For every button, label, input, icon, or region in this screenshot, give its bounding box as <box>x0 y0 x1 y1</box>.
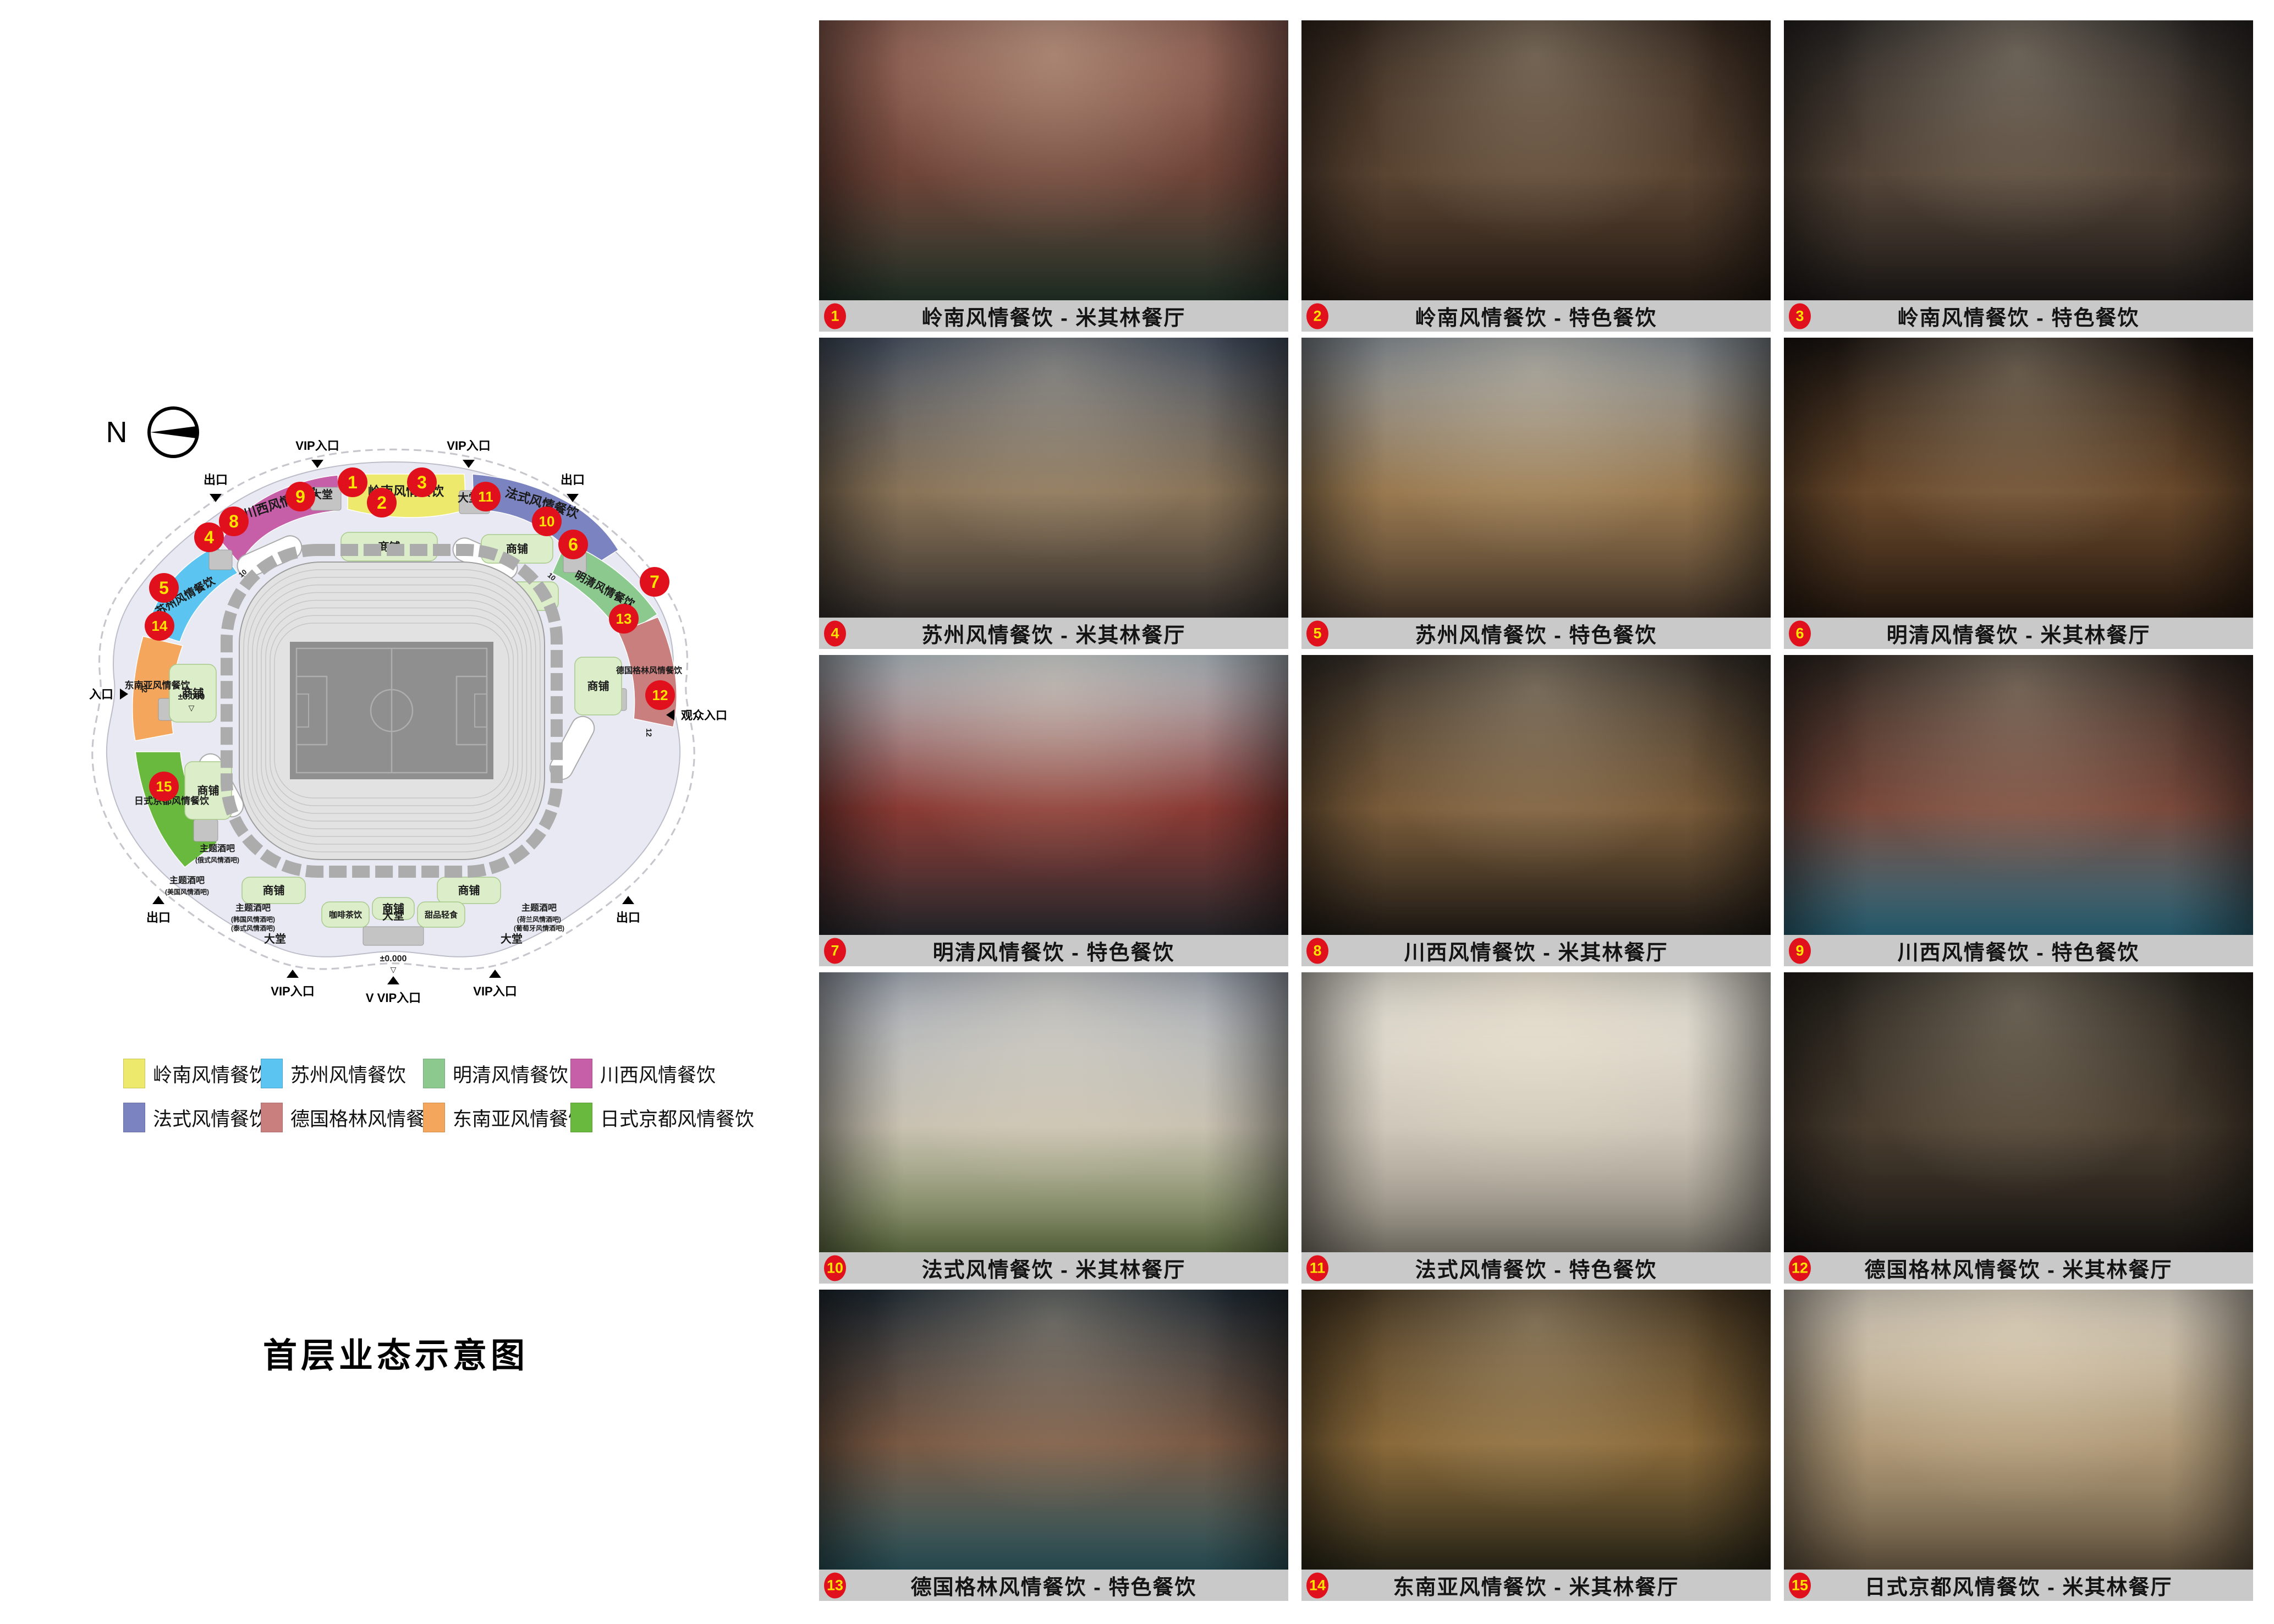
entrance-label: 出口 <box>561 473 585 487</box>
photo-card: 8川西风情餐饮 - 米其林餐厅 <box>1301 655 1771 966</box>
entrance-label: VIP入口 <box>271 984 314 998</box>
plan-marker-number: 9 <box>295 487 305 507</box>
photo-card: 13德国格林风情餐饮 - 特色餐饮 <box>819 1290 1288 1601</box>
caption-number-badge: 13 <box>824 1572 846 1598</box>
photo-caption-bar: 6明清风情餐饮 - 米其林餐厅 <box>1784 618 2253 649</box>
plan-label: ▽ <box>189 703 195 712</box>
compass-needle-icon <box>150 426 196 438</box>
caption-text: 明清风情餐饮 - 米其林餐厅 <box>1887 618 2151 648</box>
plan-marker-number: 13 <box>616 610 632 627</box>
photo-card: 9川西风情餐饮 - 特色餐饮 <box>1784 655 2253 966</box>
plan-label: (荷兰风情酒吧) <box>517 915 561 923</box>
legend-swatch <box>423 1059 445 1088</box>
photo-caption-bar: 3岭南风情餐饮 - 特色餐饮 <box>1784 300 2253 332</box>
entrance-arrow-icon <box>489 970 501 978</box>
caption-text: 法式风情餐饮 - 米其林餐厅 <box>922 1253 1186 1283</box>
legend-label: 法式风情餐饮 <box>153 1104 268 1132</box>
zone-label: 东南亚风情餐饮 <box>125 680 191 691</box>
photo-caption-bar: 7明清风情餐饮 - 特色餐饮 <box>819 935 1288 966</box>
caption-number-badge: 5 <box>1306 620 1328 646</box>
legend: 岭南风情餐饮苏州风情餐饮明清风情餐饮川西风情餐饮法式风情餐饮德国格林风情餐饮东南… <box>123 1059 800 1132</box>
plan-label: 大堂 <box>264 933 286 945</box>
photo-caption-bar: 12德国格林风情餐饮 - 米其林餐厅 <box>1784 1252 2253 1284</box>
caption-number-badge: 7 <box>824 938 846 964</box>
caption-text: 东南亚风情餐饮 - 米其林餐厅 <box>1393 1570 1679 1600</box>
restaurant-photo <box>1301 338 1771 618</box>
legend-label: 德国格林风情餐饮 <box>290 1104 444 1132</box>
entrance-label: VIP入口 <box>295 440 339 453</box>
presentation-board: { "page": { "title": "首层业态示意图" }, "compa… <box>0 0 2274 1624</box>
plan-label: 12 <box>140 684 149 693</box>
entrance-label: 出口 <box>616 911 640 924</box>
legend-item: 法式风情餐饮 <box>123 1103 261 1132</box>
photo-card: 7明清风情餐饮 - 特色餐饮 <box>819 655 1288 966</box>
legend-swatch <box>261 1059 283 1088</box>
caption-number-badge: 10 <box>824 1255 846 1281</box>
photo-card: 2岭南风情餐饮 - 特色餐饮 <box>1301 20 1771 332</box>
legend-item: 东南亚风情餐饮 <box>423 1103 570 1132</box>
entrance-label: VIP入口 <box>473 984 517 998</box>
photo-caption-bar: 11法式风情餐饮 - 特色餐饮 <box>1301 1252 1771 1284</box>
shop-label: 商铺 <box>587 680 609 693</box>
caption-text: 德国格林风情餐饮 - 特色餐饮 <box>911 1570 1197 1600</box>
entrance-label: V VIP入口 <box>366 991 421 1005</box>
caption-number-badge: 9 <box>1789 938 1811 964</box>
caption-text: 川西风情餐饮 - 米其林餐厅 <box>1404 935 1668 966</box>
caption-number-badge: 8 <box>1306 938 1328 964</box>
photo-caption-bar: 15日式京都风情餐饮 - 米其林餐厅 <box>1784 1570 2253 1601</box>
legend-swatch <box>123 1103 145 1132</box>
photo-grid: 1岭南风情餐饮 - 米其林餐厅2岭南风情餐饮 - 特色餐饮3岭南风情餐饮 - 特… <box>819 20 2253 1601</box>
photo-caption-bar: 1岭南风情餐饮 - 米其林餐厅 <box>819 300 1288 332</box>
legend-item: 苏州风情餐饮 <box>261 1059 423 1088</box>
legend-label: 明清风情餐饮 <box>453 1060 568 1088</box>
photo-caption-bar: 9川西风情餐饮 - 特色餐饮 <box>1784 935 2253 966</box>
plan-marker-number: 3 <box>417 472 427 492</box>
photo-card: 10法式风情餐饮 - 米其林餐厅 <box>819 972 1288 1284</box>
restaurant-photo <box>1301 20 1771 300</box>
restaurant-photo <box>819 972 1288 1252</box>
plan-label: (美国风情酒吧) <box>165 888 209 896</box>
shop-label: 商铺 <box>263 884 285 897</box>
plan-marker-number: 1 <box>348 472 358 492</box>
caption-text: 日式京都风情餐饮 - 米其林餐厅 <box>1865 1570 2173 1600</box>
caption-text: 苏州风情餐饮 - 米其林餐厅 <box>922 618 1186 648</box>
caption-number-badge: 2 <box>1306 303 1328 329</box>
photo-card: 3岭南风情餐饮 - 特色餐饮 <box>1784 20 2253 332</box>
plan-marker-number: 14 <box>152 618 168 634</box>
entrance-arrow-icon <box>311 460 323 468</box>
photo-card: 1岭南风情餐饮 - 米其林餐厅 <box>819 20 1288 332</box>
entrance-arrow-icon <box>210 494 222 502</box>
entrance-arrow-icon <box>387 976 399 984</box>
plan-marker-number: 2 <box>377 493 387 513</box>
plan-label: ▽ <box>391 965 397 974</box>
photo-caption-bar: 2岭南风情餐饮 - 特色餐饮 <box>1301 300 1771 332</box>
caption-number-badge: 3 <box>1789 303 1811 329</box>
photo-card: 12德国格林风情餐饮 - 米其林餐厅 <box>1784 972 2253 1284</box>
entrance-label: 出口 <box>146 911 171 924</box>
plan-marker-number: 7 <box>650 572 660 592</box>
legend-swatch <box>123 1059 145 1088</box>
legend-swatch <box>570 1059 592 1088</box>
plan-label: 主题酒吧 <box>235 902 271 913</box>
caption-text: 岭南风情餐饮 - 特色餐饮 <box>1898 301 2140 331</box>
entrance-label: 观众入口 <box>681 709 727 722</box>
restaurant-photo <box>819 20 1288 300</box>
stadium-plan-svg: 商铺商铺商铺商铺商铺商铺商铺商铺商铺商铺咖啡茶饮甜品轻食零售零售川西风情餐饮岭南… <box>77 440 743 1072</box>
service-block <box>363 927 424 945</box>
legend-label: 岭南风情餐饮 <box>153 1060 268 1088</box>
caption-text: 岭南风情餐饮 - 特色餐饮 <box>1415 301 1657 331</box>
caption-number-badge: 12 <box>1789 1255 1811 1281</box>
photo-caption-bar: 4苏州风情餐饮 - 米其林餐厅 <box>819 618 1288 649</box>
restaurant-photo <box>1784 20 2253 300</box>
plan-marker-number: 8 <box>229 511 239 531</box>
entrance-label: 入口 <box>89 687 113 701</box>
floor-plan: 商铺商铺商铺商铺商铺商铺商铺商铺商铺商铺咖啡茶饮甜品轻食零售零售川西风情餐饮岭南… <box>77 440 743 1072</box>
entrance-label: 出口 <box>204 473 228 487</box>
caption-text: 法式风情餐饮 - 特色餐饮 <box>1415 1253 1657 1283</box>
photo-caption-bar: 8川西风情餐饮 - 米其林餐厅 <box>1301 935 1771 966</box>
restaurant-photo <box>819 655 1288 935</box>
restaurant-photo <box>1301 1290 1771 1570</box>
entrance-arrow-icon <box>152 896 164 904</box>
caption-text: 德国格林风情餐饮 - 米其林餐厅 <box>1865 1253 2173 1283</box>
shop-label: 商铺 <box>458 884 480 897</box>
plan-label: (葡萄牙风情酒吧) <box>514 924 564 932</box>
legend-label: 苏州风情餐饮 <box>290 1060 406 1088</box>
photo-caption-bar: 13德国格林风情餐饮 - 特色餐饮 <box>819 1570 1288 1601</box>
photo-caption-bar: 5苏州风情餐饮 - 特色餐饮 <box>1301 618 1771 649</box>
plan-marker-number: 4 <box>204 527 214 547</box>
caption-number-badge: 4 <box>824 620 846 646</box>
plan-label: 12 <box>645 728 653 737</box>
plan-marker-number: 5 <box>159 578 169 598</box>
caption-number-badge: 14 <box>1306 1572 1328 1598</box>
entrance-arrow-icon <box>463 460 475 468</box>
photo-card: 6明清风情餐饮 - 米其林餐厅 <box>1784 338 2253 649</box>
plan-marker-number: 15 <box>156 778 172 795</box>
entrance-label: VIP入口 <box>447 440 490 453</box>
plan-marker-number: 6 <box>568 535 578 554</box>
caption-number-badge: 11 <box>1306 1255 1328 1281</box>
photo-card: 5苏州风情餐饮 - 特色餐饮 <box>1301 338 1771 649</box>
caption-number-badge: 1 <box>824 303 846 329</box>
photo-card: 14东南亚风情餐饮 - 米其林餐厅 <box>1301 1290 1771 1601</box>
caption-text: 川西风情餐饮 - 特色餐饮 <box>1898 935 2140 966</box>
legend-item: 明清风情餐饮 <box>423 1059 570 1088</box>
restaurant-photo <box>1784 655 2253 935</box>
service-block <box>194 819 218 841</box>
plan-marker-number: 10 <box>539 513 555 530</box>
restaurant-photo <box>1784 338 2253 618</box>
caption-number-badge: 6 <box>1789 620 1811 646</box>
plan-label: 主题酒吧 <box>200 843 235 854</box>
caption-text: 岭南风情餐饮 - 米其林餐厅 <box>922 301 1186 331</box>
photo-card: 4苏州风情餐饮 - 米其林餐厅 <box>819 338 1288 649</box>
plan-label: (泰式风情酒吧) <box>231 924 275 932</box>
plan-label: ±0.000 <box>178 692 205 702</box>
plan-label: (韩国风情酒吧) <box>231 915 275 923</box>
shop-label: 商铺 <box>506 542 528 555</box>
plan-label: 主题酒吧 <box>169 875 205 885</box>
legend-swatch <box>261 1103 283 1132</box>
caption-text: 明清风情餐饮 - 特色餐饮 <box>933 935 1175 966</box>
legend-item: 川西风情餐饮 <box>570 1059 800 1088</box>
zone-label: 德国格林风情餐饮 <box>616 665 683 675</box>
restaurant-photo <box>1301 655 1771 935</box>
plan-marker-number: 11 <box>478 488 493 505</box>
restaurant-photo <box>1301 972 1771 1252</box>
legend-item: 德国格林风情餐饮 <box>261 1103 423 1132</box>
caption-text: 苏州风情餐饮 - 特色餐饮 <box>1415 618 1657 648</box>
plan-marker-number: 12 <box>652 687 668 703</box>
photo-caption-bar: 14东南亚风情餐饮 - 米其林餐厅 <box>1301 1570 1771 1601</box>
page-title: 首层业态示意图 <box>263 1328 529 1377</box>
plan-label: (俄式风情酒吧) <box>195 856 239 864</box>
plan-label: 主题酒吧 <box>521 902 557 913</box>
plan-label: 大堂 <box>382 910 404 922</box>
restaurant-photo <box>1784 1290 2253 1570</box>
restaurant-photo <box>819 1290 1288 1570</box>
legend-item: 岭南风情餐饮 <box>123 1059 261 1088</box>
entrance-arrow-icon <box>287 970 299 978</box>
legend-label: 日式京都风情餐饮 <box>600 1104 754 1132</box>
plan-label: ±0.000 <box>380 954 407 964</box>
legend-item: 日式京都风情餐饮 <box>570 1103 800 1132</box>
shop-label: 甜品轻食 <box>425 910 458 920</box>
service-block <box>209 550 232 570</box>
legend-swatch <box>570 1103 592 1132</box>
entrance-arrow-icon <box>622 896 634 904</box>
shop-label: 咖啡茶饮 <box>329 910 362 920</box>
legend-label: 东南亚风情餐饮 <box>453 1104 587 1132</box>
photo-caption-bar: 10法式风情餐饮 - 米其林餐厅 <box>819 1252 1288 1284</box>
restaurant-photo <box>1784 972 2253 1252</box>
legend-label: 川西风情餐饮 <box>600 1060 716 1088</box>
restaurant-photo <box>819 338 1288 618</box>
legend-swatch <box>423 1103 445 1132</box>
plan-label: 大堂 <box>501 933 523 945</box>
caption-number-badge: 15 <box>1789 1572 1811 1598</box>
photo-card: 11法式风情餐饮 - 特色餐饮 <box>1301 972 1771 1284</box>
photo-card: 15日式京都风情餐饮 - 米其林餐厅 <box>1784 1290 2253 1601</box>
